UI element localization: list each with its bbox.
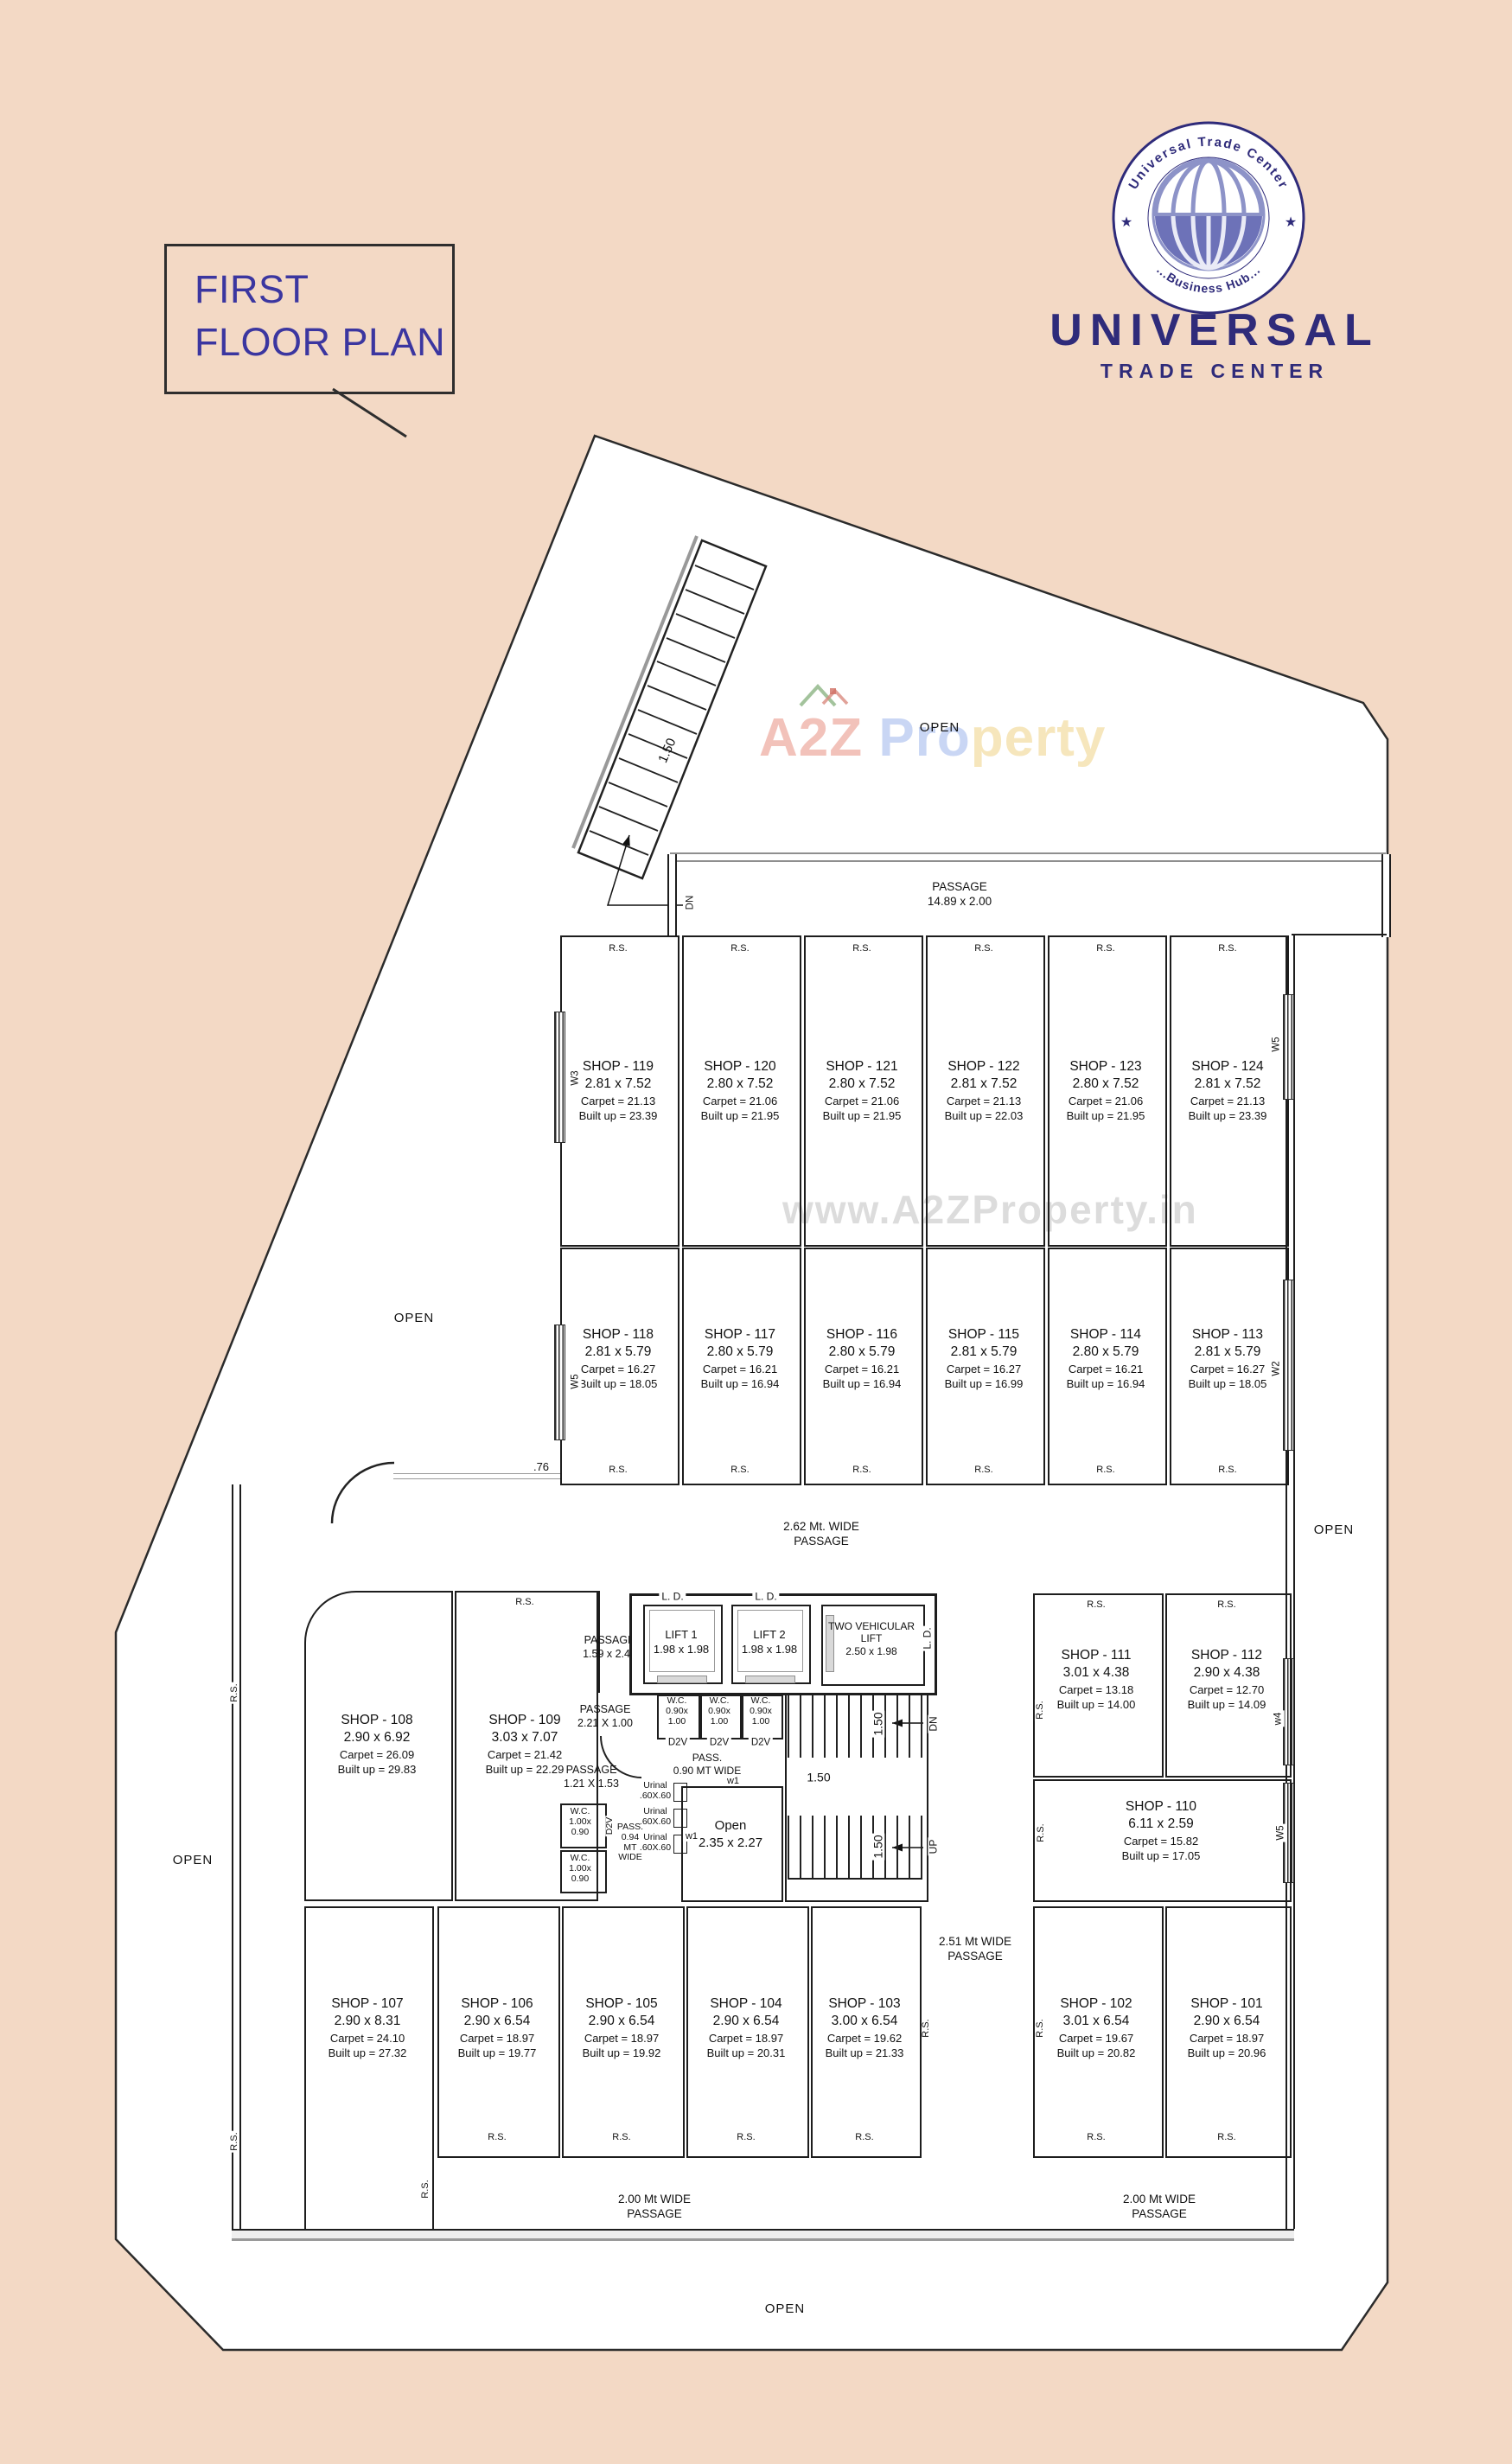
shop-name: SHOP - 110 <box>1122 1798 1201 1816</box>
rs-label: R.S. <box>1084 2132 1107 2142</box>
lift-2-label: LIFT 21.98 x 1.98 <box>742 1627 797 1656</box>
wc-dim: 1.00x <box>569 1817 591 1828</box>
shop-carpet: Carpet = 18.97 <box>458 2031 537 2046</box>
shop-builtup: Built up = 14.09 <box>1188 1697 1266 1712</box>
dim-076: .76 <box>531 1461 552 1473</box>
shop-carpet: Carpet = 16.21 <box>1067 1362 1145 1376</box>
rs-label: R.S. <box>1215 1599 1238 1610</box>
wall <box>667 854 677 937</box>
brand-wordmark: UNIVERSAL TRADE CENTER <box>1020 304 1409 383</box>
shop-dim: 2.81 x 7.52 <box>945 1076 1024 1093</box>
urinal-dim: .60X.60 <box>640 1843 671 1854</box>
shop-builtup: Built up = 18.05 <box>1189 1376 1267 1391</box>
wall <box>1292 934 1387 935</box>
shop-label: SHOP - 1082.90 x 6.92Carpet = 26.09Built… <box>338 1712 417 1777</box>
lift-2-door <box>745 1676 795 1683</box>
watermark-hero: A2Z Property <box>759 707 1106 769</box>
floor-plan-page: 1.50 Universal Trade Center ...Business … <box>0 0 1512 2464</box>
wc-dim: 0.90 <box>569 1874 591 1885</box>
lift-name: LIFT 2 <box>742 1627 797 1642</box>
company-logo: Universal Trade Center ...Business Hub..… <box>1113 123 1304 313</box>
shop-name: SHOP - 122 <box>945 1058 1024 1076</box>
shop-dim: 2.80 x 5.79 <box>701 1344 780 1361</box>
shop-builtup: Built up = 20.82 <box>1057 2046 1136 2060</box>
d2v-label: D2V <box>707 1738 731 1749</box>
lift-1-door <box>657 1676 707 1683</box>
d2v-label: D2V <box>749 1738 773 1749</box>
stair-flight-up <box>788 1816 922 1878</box>
shop-name: SHOP - 102 <box>1057 1995 1136 2013</box>
wc-label: W.C.0.90x1.00 <box>666 1696 688 1727</box>
passage-dim: 14.89 x 2.00 <box>928 895 992 908</box>
passage-200-right-label: 2.00 Mt WIDE PASSAGE <box>1123 2193 1196 2222</box>
shop-name: SHOP - 114 <box>1067 1326 1145 1344</box>
shop-name: SHOP - 106 <box>458 1995 537 2013</box>
wc-dim: 0.90 <box>569 1828 591 1838</box>
shop-name: SHOP - 109 <box>486 1712 565 1729</box>
ld-label: L. D. <box>659 1591 686 1602</box>
shop-label: SHOP - 1222.81 x 7.52Carpet = 21.13Built… <box>945 1058 1024 1123</box>
open-duct-label: Open2.35 x 2.27 <box>699 1817 762 1852</box>
page-title-line2: FLOOR PLAN <box>195 316 452 369</box>
shop-carpet: Carpet = 18.97 <box>583 2031 661 2046</box>
passage-dim: 0.90 MT WIDE <box>673 1765 741 1777</box>
watermark-perty: perty <box>971 708 1107 768</box>
shop-name: SHOP - 111 <box>1057 1647 1136 1664</box>
globe-icon <box>1153 159 1264 270</box>
wall <box>1381 854 1391 937</box>
passage-name: PASS. <box>617 1822 643 1833</box>
d2v-label: D2V <box>605 1816 616 1836</box>
pass-094-label: PASS.0.94MTWIDE <box>617 1822 643 1863</box>
urinal-dim: .60X.60 <box>640 1791 671 1802</box>
shop-label: SHOP - 1106.11 x 2.59Carpet = 15.82Built… <box>1122 1798 1201 1863</box>
urinal-label: Urinal.60X.60 <box>640 1833 671 1854</box>
shop-name: SHOP - 112 <box>1188 1647 1266 1664</box>
wall <box>788 1878 922 1880</box>
wc-name: W.C. <box>666 1696 688 1707</box>
urinal-dim: .60X.60 <box>640 1817 671 1828</box>
shop-label: SHOP - 1052.90 x 6.54Carpet = 18.97Built… <box>583 1995 661 2060</box>
shop-dim: 6.11 x 2.59 <box>1122 1816 1201 1833</box>
window-band-w2 <box>1283 1280 1294 1451</box>
w1-label: w1 <box>683 1831 700 1842</box>
shop-dim: 2.90 x 6.54 <box>707 2013 786 2030</box>
shop-label: SHOP - 1042.90 x 6.54Carpet = 18.97Built… <box>707 1995 786 2060</box>
shop-builtup: Built up = 20.96 <box>1188 2046 1266 2060</box>
brand-name: UNIVERSAL <box>1020 304 1409 356</box>
wc-name: W.C. <box>569 1854 591 1864</box>
shop-carpet: Carpet = 19.67 <box>1057 2031 1136 2046</box>
shop-builtup: Built up = 16.94 <box>1067 1376 1145 1391</box>
shop-carpet: Carpet = 16.21 <box>701 1362 780 1376</box>
passage-dim: 2.00 Mt WIDE <box>1123 2193 1196 2205</box>
shop-dim: 3.00 x 6.54 <box>826 2013 904 2030</box>
shop-name: SHOP - 105 <box>583 1995 661 2013</box>
landing-dim: 1.50 <box>804 1771 833 1784</box>
w1-label: w1 <box>724 1776 742 1786</box>
shop-carpet: Carpet = 26.09 <box>338 1747 417 1762</box>
passage-dim: WIDE <box>617 1853 643 1863</box>
rs-label: R.S. <box>1035 1699 1045 1720</box>
watermark-pro: Pro <box>878 708 970 768</box>
rs-label: R.S. <box>972 1465 995 1475</box>
shop-builtup: Built up = 20.31 <box>707 2046 786 2060</box>
passage-name: PASSAGE <box>627 2207 682 2220</box>
stair-flight-dn <box>788 1695 922 1758</box>
watermark-a2z: A2Z <box>759 708 863 768</box>
urinal-label: Urinal.60X.60 <box>640 1781 671 1802</box>
shop-label: SHOP - 1232.80 x 7.52Carpet = 21.06Built… <box>1067 1058 1145 1123</box>
shop-carpet: Carpet = 19.62 <box>826 2031 904 2046</box>
shop-carpet: Carpet = 24.10 <box>329 2031 407 2046</box>
shop-carpet: Carpet = 21.06 <box>823 1094 902 1108</box>
logo-star-right: ★ <box>1285 215 1297 230</box>
window-label: W3 <box>571 1069 582 1087</box>
passage-dim: 2.62 Mt. WIDE <box>783 1520 859 1533</box>
shop-label: SHOP - 1192.81 x 7.52Carpet = 21.13Built… <box>579 1058 658 1123</box>
shop-name: SHOP - 104 <box>707 1995 786 2013</box>
shop-builtup: Built up = 18.05 <box>579 1376 658 1391</box>
shop-dim: 2.80 x 7.52 <box>701 1076 780 1093</box>
d2v-label: D2V <box>666 1738 690 1749</box>
shop-builtup: Built up = 22.29 <box>486 1762 565 1777</box>
open-area-label: OPEN <box>392 1312 437 1326</box>
passage-159-label: PASSAGE 1.59 x 2.44 <box>583 1634 636 1661</box>
shop-name: SHOP - 115 <box>945 1326 1024 1344</box>
shop-label: SHOP - 1122.90 x 4.38Carpet = 12.70Built… <box>1188 1647 1266 1712</box>
shop-name: SHOP - 119 <box>579 1058 658 1076</box>
rs-label: R.S. <box>513 1597 536 1607</box>
rs-label: R.S. <box>728 943 751 954</box>
shop-carpet: Carpet = 16.21 <box>823 1362 902 1376</box>
wc-dim: 0.90x <box>666 1707 688 1717</box>
shop-builtup: Built up = 16.94 <box>823 1376 902 1391</box>
shop-name: SHOP - 103 <box>826 1995 904 2013</box>
pass-090-label: PASS. 0.90 MT WIDE <box>673 1752 741 1778</box>
shop-dim: 2.90 x 8.31 <box>329 2013 407 2030</box>
shop-label: SHOP - 1242.81 x 7.52Carpet = 21.13Built… <box>1189 1058 1267 1123</box>
wc-name: W.C. <box>708 1696 730 1707</box>
shop-label: SHOP - 1023.01 x 6.54Carpet = 19.67Built… <box>1057 1995 1136 2060</box>
passage-dim: 1.21 X 1.53 <box>564 1778 619 1790</box>
shop-dim: 2.81 x 7.52 <box>1189 1076 1267 1093</box>
rs-label: R.S. <box>1084 1599 1107 1610</box>
shop-carpet: Carpet = 16.27 <box>945 1362 1024 1376</box>
wc-name: W.C. <box>569 1807 591 1817</box>
passage-glazing-top <box>670 852 1386 862</box>
wc-dim: 1.00 <box>666 1717 688 1727</box>
shop-label: SHOP - 1072.90 x 8.31Carpet = 24.10Built… <box>329 1995 407 2060</box>
shop-label: SHOP - 1182.81 x 5.79Carpet = 16.27Built… <box>579 1326 658 1391</box>
urinal-name: Urinal <box>640 1807 671 1817</box>
rs-label: R.S. <box>921 2017 931 2039</box>
passage-200-left-label: 2.00 Mt WIDE PASSAGE <box>618 2193 691 2222</box>
shop-name: SHOP - 118 <box>579 1326 658 1344</box>
title-callout: FIRST FLOOR PLAN <box>164 244 455 394</box>
window-band-w5 <box>1283 994 1294 1100</box>
shop-builtup: Built up = 23.39 <box>1189 1108 1267 1123</box>
shop-carpet: Carpet = 13.18 <box>1057 1682 1136 1697</box>
vehicular-lift-label: TWO VEHICULARLIFT2.50 x 1.98 <box>828 1620 915 1657</box>
wc-label: W.C.0.90x1.00 <box>708 1696 730 1727</box>
shop-dim: 3.01 x 6.54 <box>1057 2013 1136 2030</box>
passage-name: PASSAGE <box>584 1634 635 1646</box>
rs-label: R.S. <box>606 943 629 954</box>
shop-builtup: Built up = 16.99 <box>945 1376 1024 1391</box>
lift-dim: 2.50 x 1.98 <box>828 1645 915 1657</box>
lift-dim: 1.98 x 1.98 <box>742 1642 797 1656</box>
shop-dim: 2.80 x 7.52 <box>1067 1076 1145 1093</box>
open-area-label: OPEN <box>1311 1523 1357 1538</box>
ld-label: L. D. <box>752 1591 779 1602</box>
shop-carpet: Carpet = 21.13 <box>1189 1094 1267 1108</box>
shop-label: SHOP - 1142.80 x 5.79Carpet = 16.21Built… <box>1067 1326 1145 1391</box>
shop-builtup: Built up = 29.83 <box>338 1762 417 1777</box>
window-band-w5 <box>554 1325 565 1440</box>
stair-dim: 1.50 <box>871 1833 884 1860</box>
shop-name: SHOP - 113 <box>1189 1326 1267 1344</box>
brand-subtitle: TRADE CENTER <box>1020 360 1409 383</box>
logo-star-left: ★ <box>1120 215 1132 230</box>
passage-name: PASSAGE <box>1132 2207 1187 2220</box>
wall-building-bottom <box>232 2229 1294 2241</box>
rs-label: R.S. <box>850 943 873 954</box>
urinal-name: Urinal <box>640 1781 671 1791</box>
shop-dim: 2.81 x 7.52 <box>579 1076 658 1093</box>
window-label: W2 <box>1272 1359 1283 1377</box>
up-label: UP <box>928 1838 939 1856</box>
shop-dim: 2.81 x 5.79 <box>1189 1344 1267 1361</box>
shop-carpet: Carpet = 16.27 <box>1189 1362 1267 1376</box>
room-dim: 2.35 x 2.27 <box>699 1835 762 1852</box>
wall-building-left <box>232 1484 241 2231</box>
wc-dim: 1.00 <box>708 1717 730 1727</box>
shop-dim: 2.80 x 7.52 <box>823 1076 902 1093</box>
lift-1-label: LIFT 11.98 x 1.98 <box>654 1627 709 1656</box>
rs-label: R.S. <box>1036 1822 1046 1843</box>
shop-dim: 2.90 x 6.54 <box>583 2013 661 2030</box>
shop-carpet: Carpet = 21.13 <box>579 1094 658 1108</box>
shop-dim: 2.90 x 6.54 <box>1188 2013 1266 2030</box>
rs-label: R.S. <box>485 2132 508 2142</box>
rs-label: R.S. <box>852 2132 876 2142</box>
rs-label: R.S. <box>229 1682 239 1703</box>
watermark-house-icon <box>795 680 856 711</box>
rs-label: R.S. <box>1094 943 1117 954</box>
wc-label: W.C.1.00x0.90 <box>569 1807 591 1837</box>
rs-label: R.S. <box>1094 1465 1117 1475</box>
rs-label: R.S. <box>728 1465 751 1475</box>
shop-builtup: Built up = 21.95 <box>1067 1108 1145 1123</box>
rs-label: R.S. <box>229 2130 239 2152</box>
shop-carpet: Carpet = 16.27 <box>579 1362 658 1376</box>
open-area-label: OPEN <box>762 2302 808 2317</box>
shop-name: SHOP - 117 <box>701 1326 780 1344</box>
shop-dim: 2.81 x 5.79 <box>945 1344 1024 1361</box>
passage-dim: 2.21 X 1.00 <box>577 1717 633 1729</box>
shop-builtup: Built up = 17.05 <box>1122 1848 1201 1863</box>
shop-dim: 3.03 x 7.07 <box>486 1729 565 1746</box>
wc-dim: 0.90x <box>708 1707 730 1717</box>
shop-dim: 2.81 x 5.79 <box>579 1344 658 1361</box>
shop-carpet: Carpet = 15.82 <box>1122 1834 1201 1848</box>
shop-name: SHOP - 108 <box>338 1712 417 1729</box>
shop-name: SHOP - 121 <box>823 1058 902 1076</box>
ld-label: L. D. <box>922 1625 933 1650</box>
shop-carpet: Carpet = 21.06 <box>701 1094 780 1108</box>
shop-dim: 2.90 x 4.38 <box>1188 1664 1266 1682</box>
shop-builtup: Built up = 22.03 <box>945 1108 1024 1123</box>
shop-label: SHOP - 1152.81 x 5.79Carpet = 16.27Built… <box>945 1326 1024 1391</box>
shop-name: SHOP - 123 <box>1067 1058 1145 1076</box>
passage-dim: 2.51 Mt WIDE <box>939 1935 1011 1948</box>
shop-name: SHOP - 107 <box>329 1995 407 2013</box>
shop-carpet: Carpet = 21.06 <box>1067 1094 1145 1108</box>
passage-name: PASSAGE <box>580 1703 631 1715</box>
rs-label: R.S. <box>420 2178 431 2199</box>
open-area-label: OPEN <box>917 721 963 736</box>
shop-label: SHOP - 1132.81 x 5.79Carpet = 16.27Built… <box>1189 1326 1267 1391</box>
passage-name: PASSAGE <box>932 880 987 893</box>
passage-dim: 1.59 x 2.44 <box>583 1648 636 1660</box>
passage-dim: 0.94 <box>617 1833 643 1843</box>
passage-262-label: 2.62 Mt. WIDE PASSAGE <box>783 1520 859 1549</box>
rs-label: R.S. <box>1215 1465 1239 1475</box>
shop-carpet: Carpet = 12.70 <box>1188 1682 1266 1697</box>
shop-name: SHOP - 120 <box>701 1058 780 1076</box>
passage-name: PASSAGE <box>794 1535 849 1548</box>
open-area-label: OPEN <box>170 1854 216 1868</box>
shop-carpet: Carpet = 21.42 <box>486 1747 565 1762</box>
shop-dim: 2.90 x 6.92 <box>338 1729 417 1746</box>
lift-name: TWO VEHICULAR <box>828 1620 915 1632</box>
dn-label: DN <box>928 1714 939 1733</box>
wc-label: W.C.0.90x1.00 <box>750 1696 772 1727</box>
rs-label: R.S. <box>850 1465 873 1475</box>
shop-name: SHOP - 124 <box>1189 1058 1267 1076</box>
shop-builtup: Built up = 16.94 <box>701 1376 780 1391</box>
shop-builtup: Built up = 14.00 <box>1057 1697 1136 1712</box>
shop-label: SHOP - 1212.80 x 7.52Carpet = 21.06Built… <box>823 1058 902 1123</box>
shop-label: SHOP - 1062.90 x 6.54Carpet = 18.97Built… <box>458 1995 537 2060</box>
passage-name: PASSAGE <box>566 1764 617 1776</box>
passage-dim: 2.00 Mt WIDE <box>618 2193 691 2205</box>
shop-name: SHOP - 101 <box>1188 1995 1266 2013</box>
passage-251-label: 2.51 Mt WIDE PASSAGE <box>939 1935 1011 1964</box>
page-title-line1: FIRST <box>195 264 452 316</box>
urinal-name: Urinal <box>640 1833 671 1843</box>
shop-builtup: Built up = 27.32 <box>329 2046 407 2060</box>
window-label: W5 <box>1272 1035 1283 1053</box>
rs-label: R.S. <box>606 1465 629 1475</box>
shop-label: SHOP - 1033.00 x 6.54Carpet = 19.62Built… <box>826 1995 904 2060</box>
shop-dim: 2.90 x 6.54 <box>458 2013 537 2030</box>
shop-builtup: Built up = 19.77 <box>458 2046 537 2060</box>
glazing-segment <box>393 1473 560 1479</box>
shop-builtup: Built up = 21.33 <box>826 2046 904 2060</box>
shop-label: SHOP - 1172.80 x 5.79Carpet = 16.21Built… <box>701 1326 780 1391</box>
rs-label: R.S. <box>972 943 995 954</box>
passage-121-label: PASSAGE 1.21 X 1.53 <box>564 1764 619 1791</box>
dn-label: DN <box>686 894 697 912</box>
passage-221-label: PASSAGE 2.21 X 1.00 <box>577 1703 633 1730</box>
wc-dim: 1.00x <box>569 1864 591 1874</box>
shop-dim: 3.01 x 4.38 <box>1057 1664 1136 1682</box>
rs-label: R.S. <box>609 2132 633 2142</box>
shop-label: SHOP - 1012.90 x 6.54Carpet = 18.97Built… <box>1188 1995 1266 2060</box>
shop-label: SHOP - 1162.80 x 5.79Carpet = 16.21Built… <box>823 1326 902 1391</box>
shop-label: SHOP - 1093.03 x 7.07Carpet = 21.42Built… <box>486 1712 565 1777</box>
wc-label: W.C.1.00x0.90 <box>569 1854 591 1884</box>
passage-name: PASS. <box>692 1752 722 1764</box>
wc-name: W.C. <box>750 1696 772 1707</box>
shop-107-room <box>304 1906 434 2231</box>
shop-label: SHOP - 1202.80 x 7.52Carpet = 21.06Built… <box>701 1058 780 1123</box>
shop-carpet: Carpet = 18.97 <box>1188 2031 1266 2046</box>
shop-builtup: Built up = 19.92 <box>583 2046 661 2060</box>
lift-dim: 1.98 x 1.98 <box>654 1642 709 1656</box>
shop-carpet: Carpet = 18.97 <box>707 2031 786 2046</box>
shop-builtup: Built up = 21.95 <box>701 1108 780 1123</box>
title-pointer-line <box>333 389 406 437</box>
wc-dim: 0.90x <box>750 1707 772 1717</box>
shop-label: SHOP - 1113.01 x 4.38Carpet = 13.18Built… <box>1057 1647 1136 1712</box>
shop-carpet: Carpet = 21.13 <box>945 1094 1024 1108</box>
window-label: W5 <box>571 1372 582 1390</box>
wc-dim: 1.00 <box>750 1717 772 1727</box>
lift-name: LIFT 1 <box>654 1627 709 1642</box>
shop-builtup: Built up = 21.95 <box>823 1108 902 1123</box>
urinal-label: Urinal.60X.60 <box>640 1807 671 1828</box>
shop-builtup: Built up = 23.39 <box>579 1108 658 1123</box>
rs-label: R.S. <box>1215 943 1239 954</box>
lift-name: LIFT <box>828 1632 915 1644</box>
window-band-w3 <box>554 1012 565 1143</box>
stair-dim: 1.50 <box>871 1710 884 1737</box>
shop-dim: 2.80 x 5.79 <box>1067 1344 1145 1361</box>
rs-label: R.S. <box>1215 2132 1238 2142</box>
passage-name: PASSAGE <box>947 1950 1003 1963</box>
room-name: Open <box>699 1817 762 1835</box>
passage-label-top: PASSAGE 14.89 x 2.00 <box>928 880 992 910</box>
rs-label: R.S. <box>734 2132 757 2142</box>
shop-dim: 2.80 x 5.79 <box>823 1344 902 1361</box>
shop-name: SHOP - 116 <box>823 1326 902 1344</box>
